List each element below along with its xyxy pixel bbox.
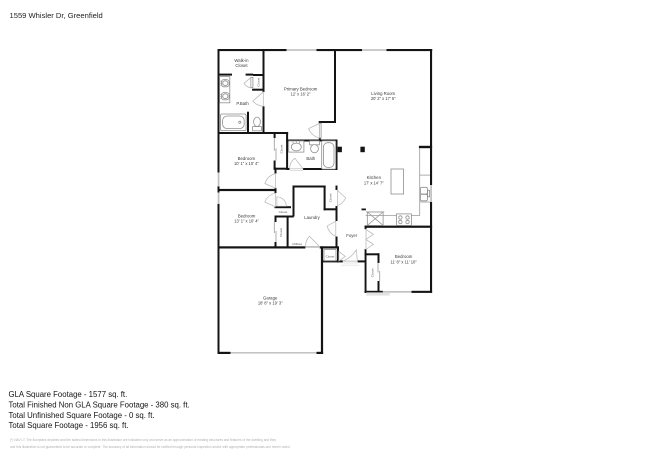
svg-text:Bath: Bath [306,156,315,161]
svg-text:13' 1" x 10' 4": 13' 1" x 10' 4" [234,219,259,224]
svg-text:17' x 14' 7": 17' x 14' 7" [364,180,384,185]
svg-text:Closet: Closet [326,255,335,259]
svg-text:Closet: Closet [329,193,333,202]
svg-text:P.Bath: P.Bath [236,101,249,106]
svg-text:Bedroom: Bedroom [395,254,413,259]
svg-text:Foyer: Foyer [346,233,358,238]
svg-text:Total Finished Non GLA Square: Total Finished Non GLA Square Footage - … [9,400,190,409]
svg-text:11' 8" x 11' 10": 11' 8" x 11' 10" [390,259,417,264]
svg-text:Laundry: Laundry [304,215,320,220]
svg-text:(*) NAV LT: The floorplans dep: (*) NAV LT: The floorplans depicted and … [10,438,276,442]
svg-text:1559 Whisler Dr, Greenfield: 1559 Whisler Dr, Greenfield [10,11,103,20]
svg-text:Closet: Closet [256,78,260,87]
svg-text:20' 2" x 17' 5": 20' 2" x 17' 5" [371,96,396,101]
svg-text:18' 8" x 19' 3": 18' 8" x 19' 3" [258,301,283,306]
svg-text:Closet: Closet [279,228,283,237]
svg-text:Total Unfinished Square Footag: Total Unfinished Square Footage - 0 sq. … [9,411,155,420]
svg-text:GLA Square Footage - 1577 sq.: GLA Square Footage - 1577 sq. ft. [9,390,128,399]
svg-text:and this illustration is not g: and this illustration is not guaranteed … [10,445,291,449]
svg-text:Closet: Closet [279,210,288,214]
svg-text:Garage: Garage [263,295,278,300]
svg-text:Closet: Closet [370,268,374,277]
svg-text:Utilities: Utilities [292,242,302,246]
svg-text:10' 1" x 10' 4": 10' 1" x 10' 4" [234,161,259,166]
svg-text:Total Square Footage - 1956 sq: Total Square Footage - 1956 sq. ft. [9,421,129,430]
svg-text:Closet: Closet [235,63,248,68]
svg-text:Kitchen: Kitchen [367,175,382,180]
svg-text:Closet: Closet [279,144,283,153]
svg-text:12' x 16' 2": 12' x 16' 2" [291,91,311,96]
